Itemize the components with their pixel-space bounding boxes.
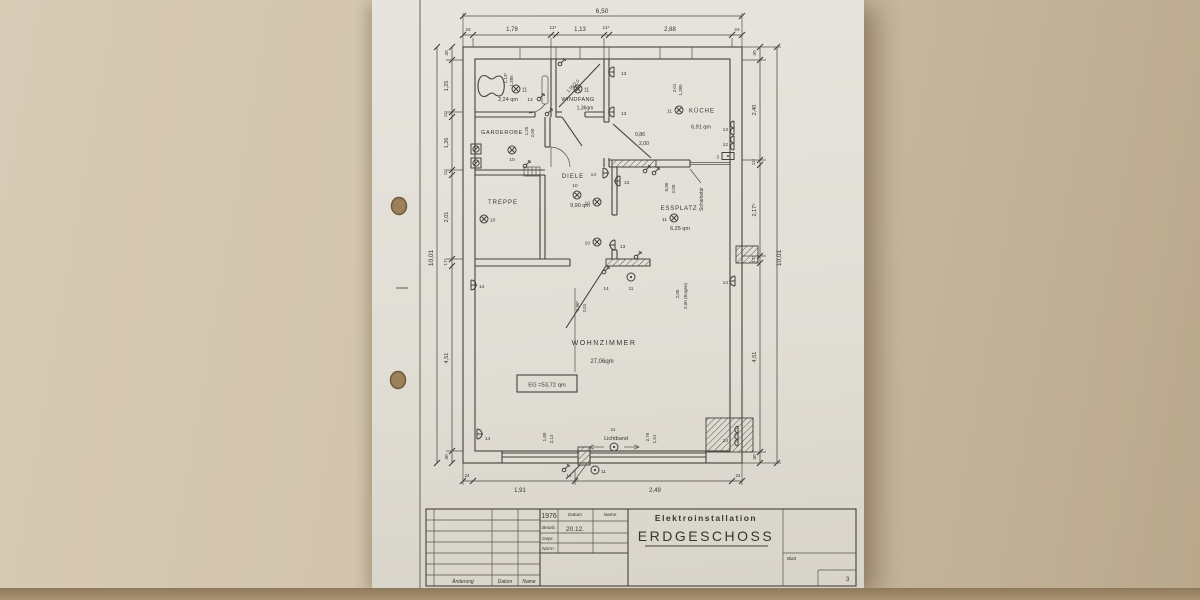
room-label-windfang: WINDFANG [561,97,594,103]
dim-label: 2,00 [639,141,649,147]
switch-icon [537,93,545,101]
room-label-garderobe: GARDEROBE [481,130,523,136]
room-area-wohnzimmer: 27,06qm [590,359,613,365]
socket-icon [731,121,735,135]
dim-label: 6,50 [596,8,609,15]
dim-label: 17⁵ [443,258,448,265]
dim-label: 1,05/2,0 [565,78,580,94]
dim-label: 1,26 [444,138,450,149]
titleblock-norm: Norm [542,546,554,552]
wall-socket-icon [471,144,481,154]
wall-socket-icon [471,158,481,168]
dim-label: 1,385 [678,84,683,96]
socket-icon [477,429,483,439]
dim-label: 2,01 [582,303,587,312]
dim-label: 0,86⁵ [575,301,580,312]
symbol-number: 13 [624,180,630,186]
scanned-photo-background: 6,50 24 1,78 11⁵ 1,13 11⁵ 2,88 24 10,01 … [0,0,1200,600]
dimension-chain-top: 6,50 24 1,78 11⁵ 1,13 11⁵ 2,88 24 [460,8,745,47]
switch-icon [634,251,642,259]
dim-label: 24 [464,473,470,478]
symbol-number: 14 [479,284,485,290]
switch-icon [652,167,660,175]
junction-box-icon [722,153,734,160]
dim-label: 24 [465,27,471,33]
dim-label: 10,01 [428,249,435,266]
symbol-number: 13 [527,97,533,103]
dim-label: 1,13 [574,27,586,33]
dim-label: 11⁵ [550,25,557,31]
dim-label: 1,25 [524,126,529,135]
room-label-wohnzimmer: WOHNZIMMER [572,340,637,347]
dim-label: 2,17⁵ [751,204,758,217]
room-label-kueche: KÜCHE [689,108,715,115]
doors [529,64,701,481]
dim-label: 11⁵ [443,169,448,176]
socket-icon [603,168,609,178]
symbol-number: 10 [572,183,578,189]
symbol-number: 11 [629,286,634,292]
dim-label: 30 [444,454,450,460]
punch-hole-top [392,198,407,215]
blatt-number: 3 [846,577,850,583]
room-labels: 2,24 qm 1,13⁵ 1,385 WINDFANG 1,36qm 1,05… [481,73,715,444]
dim-label: 2,88 [664,27,676,33]
dim-label: 1,80 [542,432,547,441]
punch-hole-bottom [391,372,406,389]
dim-label: 2,00 (Bogen) [683,282,688,309]
dim-label: 2,00 [671,184,676,193]
symbol-number: 10 [585,241,591,247]
symbol-number: 11 [611,427,616,433]
room-label-diele: DIELE [562,174,584,180]
ceiling-lamp-icon [591,466,599,474]
dim-label: 1,13⁵ [503,73,508,84]
dim-label: 11⁵ [751,159,756,166]
room-area-windfang: 1,36qm [577,106,594,112]
titleblock-bearb-datum: 20.12. [566,526,584,533]
symbol-number: 11 [522,88,527,94]
room-area-diele: 9,90 qm [570,203,590,209]
titleblock-col-datum: Datum [568,512,582,518]
blatt-label: Blatt [787,556,797,561]
dim-label: 11⁵ [443,111,448,118]
ceiling-lamp-icon [670,214,678,222]
revision-col-datum: Datum [498,579,513,585]
symbol-number: 14 [566,473,572,478]
dim-label: 24 [735,473,741,478]
windows [502,451,706,463]
dim-label: 0,86 [664,182,669,191]
room-area-essplatz: 6,25 qm [670,226,690,232]
dim-label: 2,40 [752,105,758,116]
titleblock-col-name: Name [604,512,617,518]
symbol-number: 14 [723,280,729,286]
sheet-title: ERDGESCHOSS [638,528,774,544]
wc-toilet [478,76,504,97]
symbol-number: 14 [723,438,729,444]
room-area-kueche: 6,91 qm [691,125,711,131]
dim-label: 1,91 [514,488,526,494]
dim-label: 1,385 [509,75,514,87]
dim-label: 4,51 [752,352,758,363]
symbol-number: 13 [621,71,627,77]
room-label-treppe: TREPPE [488,200,518,206]
switch-icon [545,108,553,116]
socket-icon [614,176,620,186]
title-block: Änderung Datum Name 1976 Datum Name Bear… [426,509,856,586]
symbol-number: 13 [620,244,626,250]
dim-label: 2,13 [549,434,554,443]
titleblock-gepr: Gepr. [542,536,554,542]
symbol-number: 11 [662,217,667,223]
eg-total-label: EG =53,72 qm [528,383,566,389]
revision-col-aenderung: Änderung [451,578,474,585]
lichtband-label: Lichtband [604,436,628,442]
ceiling-lamp-icon [573,191,581,199]
socket-icon [471,280,477,290]
symbol-number: 13 [621,111,627,117]
door-label-schiebetuer: Schiebetür [699,187,705,211]
dim-label: 30 [444,50,450,56]
lichtband-lamp-icon [610,443,618,451]
ceiling-lamp-icon [593,198,601,206]
symbol-number: 10 [490,218,496,224]
symbol-number: 14 [485,436,491,442]
ceiling-lamp-icon [508,146,516,154]
symbol-number: 14 [603,286,609,292]
ceiling-lamp-icon [627,273,635,281]
switch-icon [602,266,610,274]
symbol-number: 13 [723,127,729,133]
symbol-number: 11 [584,88,589,94]
dim-label: 24 [734,27,740,33]
symbol-number: 10 [509,157,515,163]
ceiling-lamp-icon [480,215,488,223]
floor-plan-drawing: 6,50 24 1,78 11⁵ 1,13 11⁵ 2,88 24 10,01 … [0,0,1200,600]
room-area-wc: 2,24 qm [498,97,518,103]
titleblock-bearb: Bearb. [542,525,556,531]
socket-icon [609,240,615,250]
dim-label: 10,01 [776,249,783,266]
dim-label: 2,76 [645,432,650,441]
switch-icon [562,464,570,472]
dim-label: 2,01 [444,212,450,223]
dimension-chain-bottom: 24 1,91 2,49 24 [460,463,745,494]
symbol-number: 11 [667,109,672,115]
dim-label: 1,78 [506,27,518,33]
titleblock-year: 1976 [541,513,557,520]
socket-icon [731,136,735,150]
revision-col-name: Name [522,579,536,585]
dim-label: 2,00 [675,289,680,298]
dim-label: 2,01 [672,83,677,92]
dim-label: 2,49 [649,488,661,494]
dim-label: 1,51 [652,434,657,443]
dim-label: 30 [752,454,758,460]
dim-label: 11⁵ [603,25,610,31]
room-label-essplatz: ESSPLATZ [661,206,698,212]
dim-label: 30 [752,50,758,56]
dim-label: 4,51 [444,353,450,364]
dim-label: 0,86 [635,132,645,138]
dim-label: 2,00 [530,128,535,137]
project-title: Elektroinstallation [655,513,757,523]
ceiling-lamp-icon [675,106,683,114]
symbol-number: 14 [591,172,597,178]
dim-label: 1,25 [444,81,450,92]
symbol-number: 3 [716,155,719,161]
symbol-number: 11 [601,469,606,475]
ceiling-lamp-icon [593,238,601,246]
symbol-number: 12 [723,142,729,148]
dimension-chain-left: 10,01 30 1,25 11⁵ 1,26 11⁵ 2,01 17⁵ 4,51… [428,44,463,466]
